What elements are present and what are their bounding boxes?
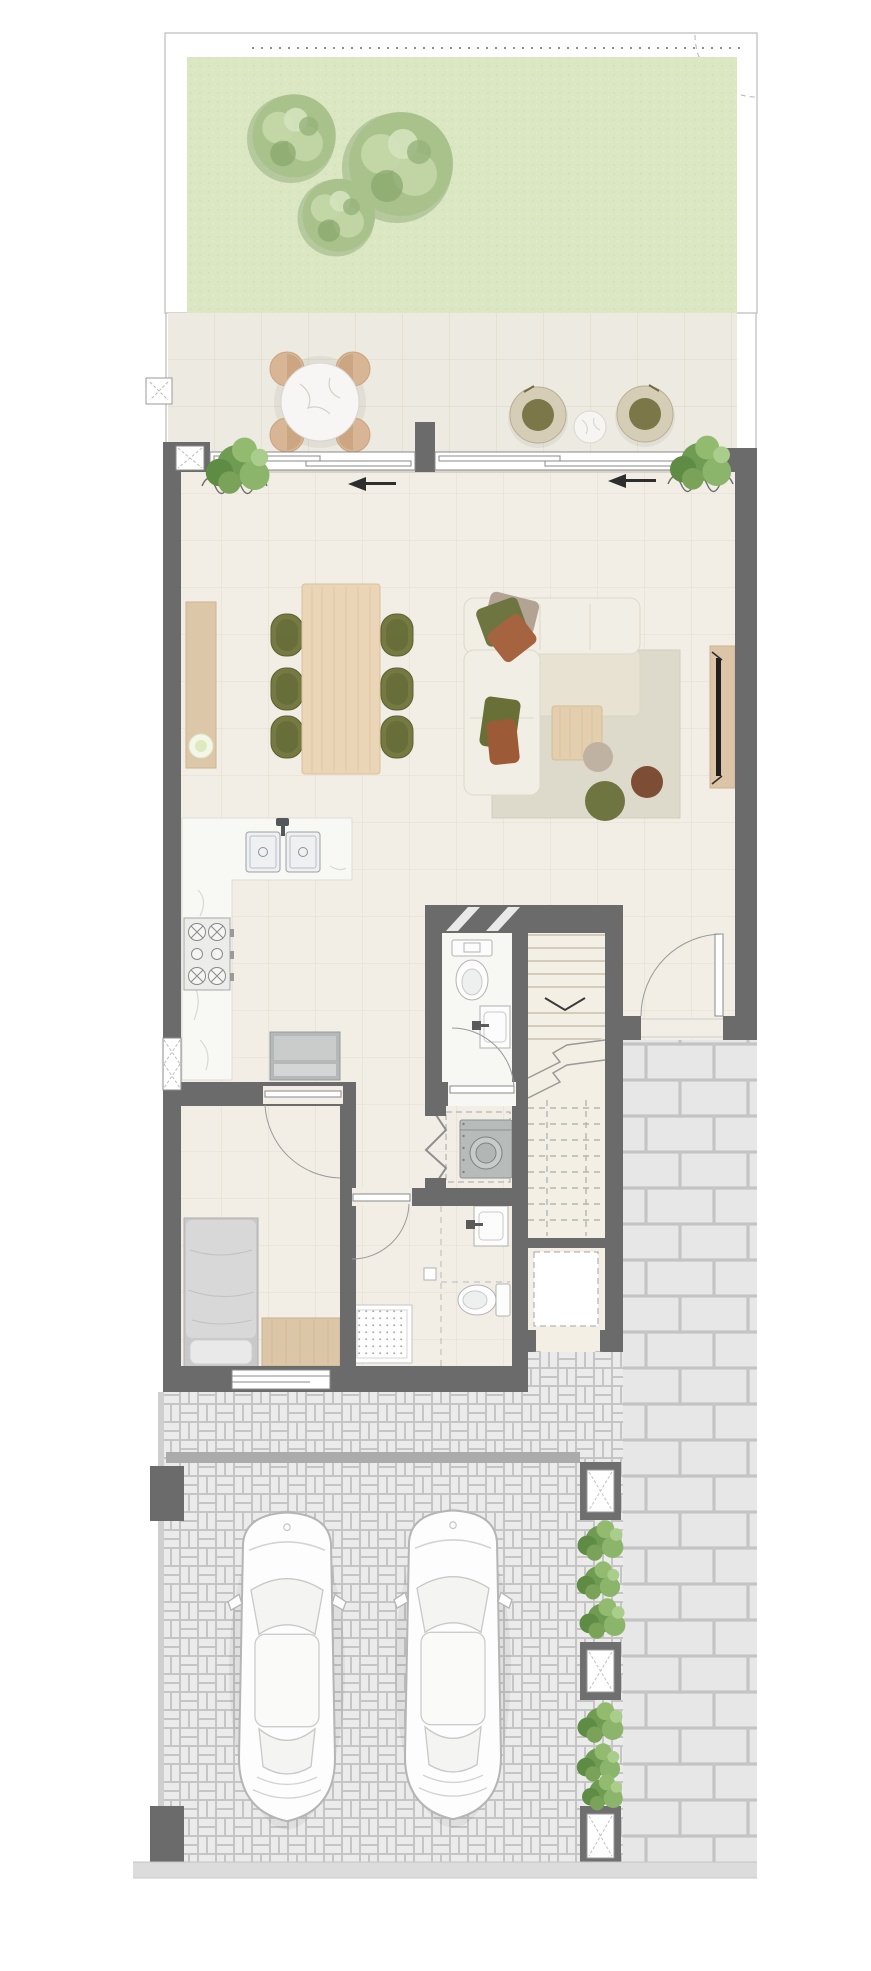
faucet-icon bbox=[466, 1220, 475, 1229]
single-bed bbox=[184, 1218, 258, 1368]
planter-box bbox=[580, 1462, 621, 1520]
planter-box bbox=[580, 1642, 621, 1700]
tv bbox=[716, 658, 721, 776]
apron bbox=[528, 1352, 623, 1392]
round-table bbox=[281, 363, 359, 441]
structural-column bbox=[176, 446, 204, 470]
planter-box bbox=[580, 1806, 621, 1866]
gate-pier bbox=[150, 1806, 184, 1864]
terrace-dining-set bbox=[270, 352, 370, 452]
side-table bbox=[574, 411, 606, 443]
floor-plan-page bbox=[0, 0, 871, 1971]
pouf bbox=[583, 742, 613, 772]
pouf bbox=[631, 766, 663, 798]
terrace bbox=[146, 313, 737, 455]
faucet-icon bbox=[276, 818, 289, 826]
x-window bbox=[163, 1038, 181, 1090]
tv-console bbox=[710, 646, 735, 788]
pillow bbox=[190, 1340, 252, 1364]
sliding-door bbox=[210, 452, 700, 470]
side-path bbox=[623, 1040, 757, 1872]
car bbox=[228, 1510, 346, 1829]
tree-icon bbox=[247, 94, 336, 183]
tree-icon bbox=[298, 179, 376, 257]
left-boundary bbox=[158, 1392, 164, 1872]
floor-plan-drawing bbox=[0, 0, 871, 1971]
washing-machine bbox=[460, 1120, 512, 1178]
cooktop bbox=[184, 918, 234, 990]
toilet bbox=[458, 1284, 510, 1316]
garden bbox=[187, 57, 737, 313]
faucet-icon bbox=[472, 1021, 481, 1030]
storage-pad bbox=[534, 1252, 598, 1326]
refrigerator bbox=[270, 1032, 340, 1080]
car bbox=[394, 1508, 512, 1827]
dining-table bbox=[302, 584, 380, 774]
gate-pier bbox=[150, 1466, 184, 1521]
sidewalk bbox=[133, 1862, 757, 1878]
gate-line bbox=[166, 1452, 580, 1463]
pouf bbox=[585, 781, 625, 821]
side-gate-marker bbox=[146, 378, 172, 404]
shower-tray bbox=[352, 1305, 412, 1363]
bedroom-window bbox=[232, 1370, 330, 1389]
paper-holder bbox=[424, 1268, 436, 1280]
